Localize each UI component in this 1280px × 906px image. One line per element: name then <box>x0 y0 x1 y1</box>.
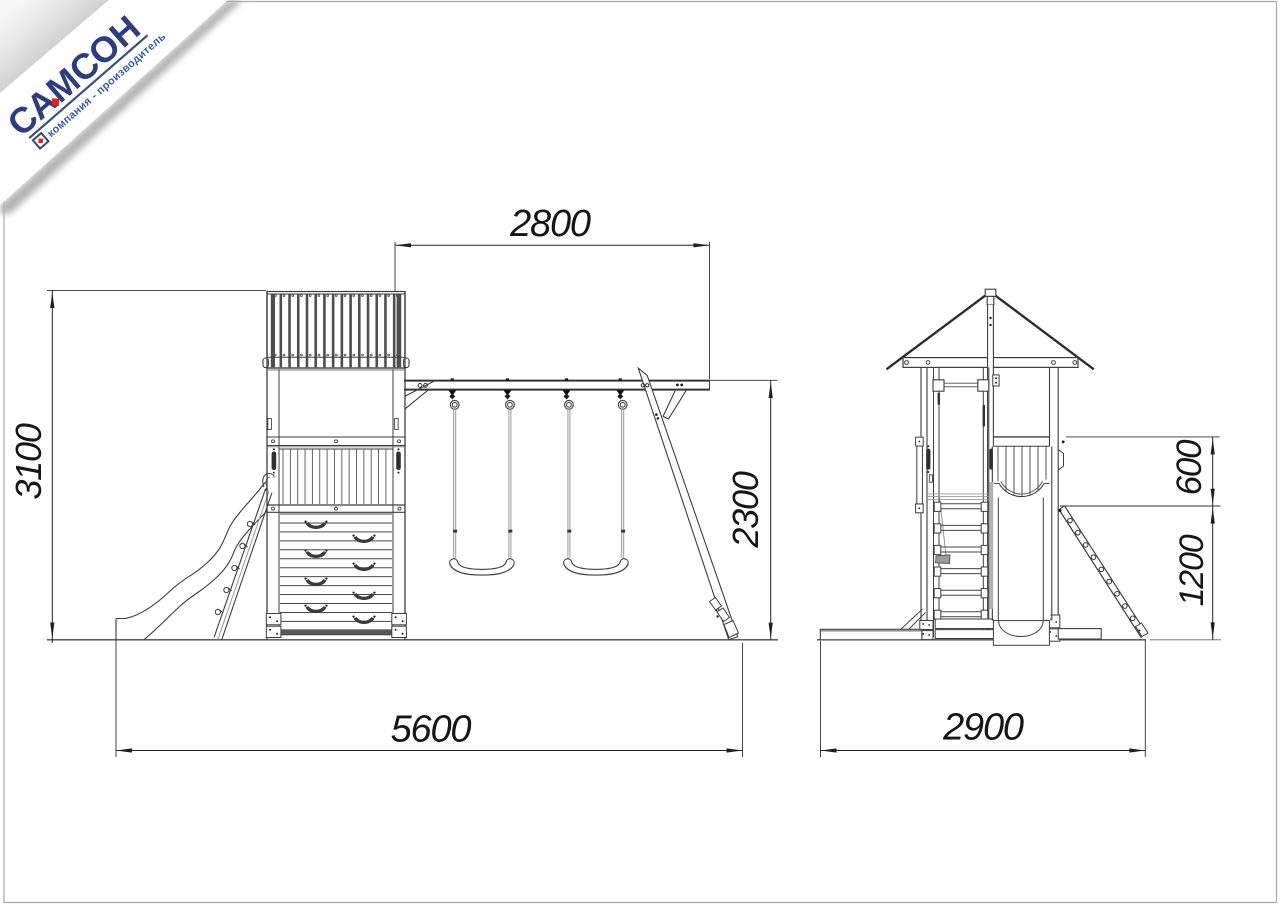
svg-text:3100: 3100 <box>8 423 49 499</box>
svg-text:600: 600 <box>1170 439 1209 496</box>
svg-text:5600: 5600 <box>391 709 472 751</box>
svg-text:2900: 2900 <box>942 707 1024 749</box>
svg-text:1200: 1200 <box>1173 534 1211 606</box>
svg-text:2800: 2800 <box>509 203 591 245</box>
svg-text:2300: 2300 <box>725 471 766 548</box>
